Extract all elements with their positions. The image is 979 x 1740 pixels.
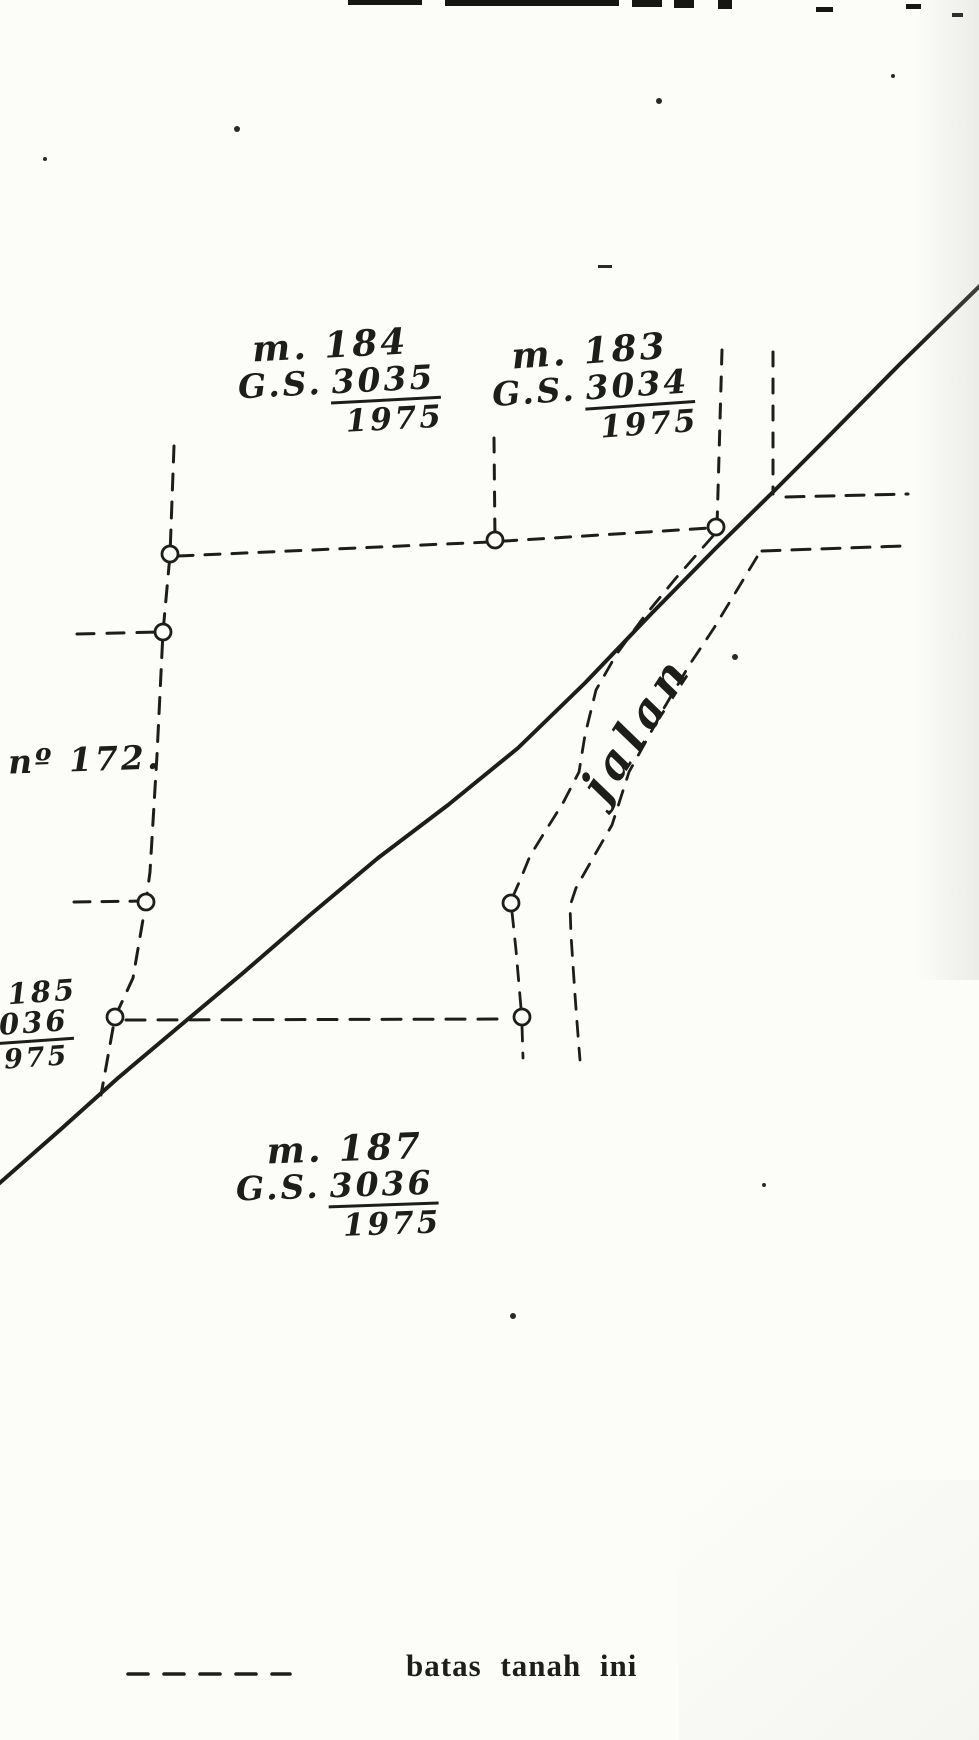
legend-label: batas tanah ini (406, 1648, 637, 1684)
boundary-right-lower-dashed (762, 546, 902, 551)
boundary-vertical-dashed (717, 350, 722, 527)
gs-fraction: 3036 1975 (0, 1005, 76, 1078)
gs-year: 1975 (599, 404, 699, 446)
boundary-stub-dashed (74, 901, 143, 902)
gs-number: 3035 (329, 359, 441, 405)
gs-prefix: G.S. (235, 1169, 321, 1207)
scanned-survey-map: m. 184 G.S. 3035 1975 m. 183 G.S. 3034 1… (0, 0, 979, 1740)
survey-marker-circle (107, 1009, 123, 1025)
gs-prefix: G.S. (491, 371, 578, 412)
boundary-vertical-dashed (494, 438, 495, 540)
parcel-label-n172: nº 172. (7, 737, 162, 781)
road-centerline-solid (0, 274, 979, 1188)
boundary-lower-dashed (126, 1019, 506, 1020)
survey-marker-circle (514, 1009, 530, 1025)
survey-marker-circle (162, 546, 178, 562)
scan-artifact-strip (348, 0, 963, 17)
parcel-label-m183: m. 183 G.S. 3034 1975 (488, 325, 699, 453)
parcel-label-m184: m. 184 G.S. 3035 1975 (235, 321, 445, 446)
survey-marker-circle (138, 894, 154, 910)
boundary-right-upper-dashed (786, 494, 908, 497)
gs-year: 1975 (0, 1041, 70, 1077)
gs-year: 1975 (345, 400, 445, 440)
boundary-stub-dashed (77, 632, 160, 634)
survey-marker-circle (155, 624, 171, 640)
gs-prefix: G.S. (237, 365, 323, 404)
parcel-label-185-clipped: 185 3036 1975 (0, 974, 83, 1077)
map-line-work (0, 0, 979, 1740)
gs-year: 1975 (342, 1205, 441, 1243)
boundary-upper-dashed (178, 528, 710, 556)
parcel-number: nº 172. (7, 737, 162, 781)
survey-marker-circle (503, 895, 519, 911)
gs-fraction: 3035 1975 (329, 359, 445, 441)
parcel-label-m187: m. 187 G.S. 3036 1975 (234, 1126, 442, 1247)
scan-specks (43, 74, 895, 1319)
gs-fraction: 3034 1975 (582, 363, 699, 447)
survey-marker-circle (708, 519, 724, 535)
gs-fraction: 3036 1975 (327, 1164, 442, 1244)
survey-marker-circle (487, 532, 503, 548)
road-edge-right-dashed (570, 557, 757, 1060)
gs-number: 3036 (327, 1165, 438, 1209)
